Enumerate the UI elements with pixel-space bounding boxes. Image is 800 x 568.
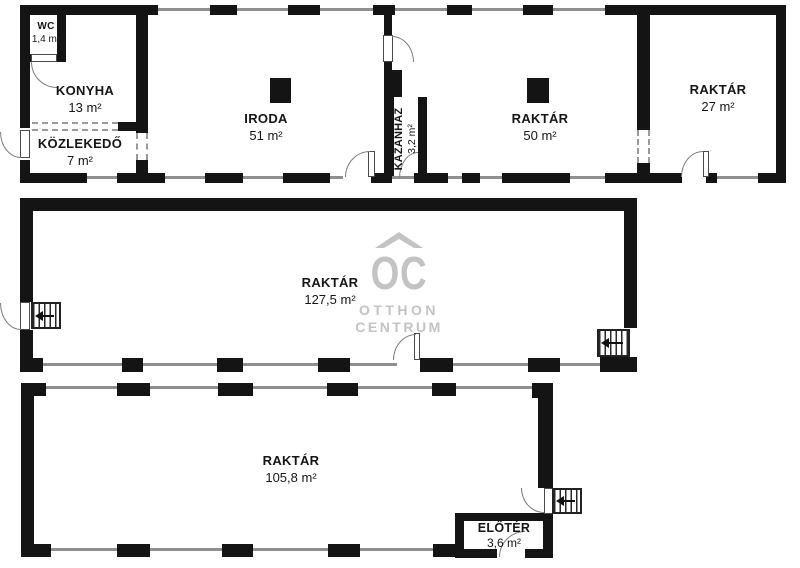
room-label-konyha: KONYHA 13 m² xyxy=(56,83,114,117)
wall-segment xyxy=(21,544,51,557)
window-line xyxy=(570,176,605,179)
staircase xyxy=(31,302,61,329)
wall-segment xyxy=(21,383,34,557)
watermark-logo-text: OC xyxy=(359,246,439,300)
room-area: 127,5 m² xyxy=(302,292,359,309)
wall-segment xyxy=(20,358,43,372)
wall-segment xyxy=(122,358,143,372)
wall-segment xyxy=(523,5,553,15)
dashed-opening xyxy=(136,133,148,160)
room-area: 7 m² xyxy=(38,153,122,170)
wall-segment xyxy=(117,173,165,183)
window-line xyxy=(243,176,283,179)
wall-segment xyxy=(136,5,148,133)
room-name: RAKTÁR xyxy=(302,275,359,292)
room-area: 1,4 m² xyxy=(32,33,60,46)
door-swing-arc xyxy=(0,303,21,330)
room-area: 50 m² xyxy=(512,128,569,145)
wall-segment xyxy=(502,173,570,183)
wall-segment xyxy=(210,5,237,15)
room-area: 105,8 m² xyxy=(263,470,320,487)
room-area: 3,6 m² xyxy=(478,536,531,552)
wall-segment xyxy=(217,358,243,372)
wall-segment xyxy=(117,544,150,557)
door-leaf xyxy=(20,302,30,330)
room-label-kazanhaz: KAZÁNHÁZ 3,2 m² xyxy=(392,108,420,171)
wall-segment xyxy=(605,5,786,15)
floor-plan: OC OTTHON CENTRUM WC 1,4 m² KONYHA 13 m²… xyxy=(0,0,800,568)
wall-segment xyxy=(328,544,360,557)
window-line xyxy=(453,363,600,366)
room-label-kozlekedo: KÖZLEKEDŐ 7 m² xyxy=(38,136,122,170)
stair-direction-arrow xyxy=(564,500,575,502)
room-area: 3,2 m² xyxy=(406,108,420,171)
staircase xyxy=(552,488,582,514)
door-swing-arc xyxy=(392,36,414,62)
stair-direction-arrow xyxy=(609,342,623,344)
window-line xyxy=(165,176,205,179)
room-label-eloter: ELŐTÉR 3,6 m² xyxy=(478,520,531,552)
door-swing-arc xyxy=(393,334,416,360)
room-name: RAKTÁR xyxy=(512,111,569,128)
wall-segment xyxy=(776,5,786,183)
room-name: ELŐTÉR xyxy=(478,520,531,536)
wall-segment xyxy=(462,173,480,183)
window-line xyxy=(717,176,758,179)
door-leaf xyxy=(703,151,709,177)
room-name: RAKTÁR xyxy=(263,453,320,470)
wall-segment xyxy=(637,163,650,173)
wall-segment xyxy=(205,173,243,183)
dashed-opening xyxy=(32,122,118,131)
door-swing-arc xyxy=(681,151,703,177)
room-label-raktar-50: RAKTÁR 50 m² xyxy=(512,111,569,145)
wall-segment xyxy=(318,358,350,372)
wall-segment xyxy=(20,54,31,62)
room-name: KAZÁNHÁZ xyxy=(392,108,406,171)
door-swing-arc xyxy=(31,62,57,88)
room-area: 13 m² xyxy=(56,100,114,117)
watermark-line2: CENTRUM xyxy=(339,319,459,335)
window-line xyxy=(480,176,502,179)
room-area: 51 m² xyxy=(244,128,287,145)
wall-segment xyxy=(327,383,358,396)
wall-segment xyxy=(420,358,453,372)
stair-direction-arrow xyxy=(43,315,54,317)
wall-segment xyxy=(447,5,472,15)
room-name: KONYHA xyxy=(56,83,114,100)
wall-segment xyxy=(605,173,682,183)
wall-segment xyxy=(600,358,637,372)
door-swing-arc xyxy=(0,132,21,158)
wall-segment xyxy=(433,544,458,557)
wall-segment xyxy=(758,173,786,183)
window-line xyxy=(330,176,343,179)
dashed-opening xyxy=(637,130,650,163)
door-swing-arc xyxy=(521,488,544,513)
room-name: RAKTÁR xyxy=(690,82,747,99)
room-name: IRODA xyxy=(244,111,287,128)
window-line xyxy=(34,386,536,389)
room-label-raktar-27: RAKTÁR 27 m² xyxy=(690,82,747,116)
wall-segment xyxy=(528,358,560,372)
room-name: KÖZLEKEDŐ xyxy=(38,136,122,153)
wall-segment xyxy=(20,330,33,358)
door-swing-arc xyxy=(345,151,370,177)
room-label-wc: WC 1,4 m² xyxy=(32,20,60,46)
wall-segment xyxy=(387,70,402,97)
column-pillar xyxy=(270,78,291,103)
room-name: WC xyxy=(32,20,60,33)
staircase xyxy=(597,329,630,357)
wall-segment xyxy=(20,211,33,302)
door-leaf xyxy=(20,130,30,158)
room-area: 27 m² xyxy=(690,99,747,116)
wall-segment xyxy=(637,5,650,130)
column-pillar xyxy=(527,78,549,103)
wall-segment xyxy=(117,383,150,396)
wall-segment xyxy=(432,383,456,396)
room-label-raktar-127: RAKTÁR 127,5 m² xyxy=(302,275,359,309)
wall-segment xyxy=(384,5,392,35)
wall-segment xyxy=(21,383,46,396)
room-label-raktar-105: RAKTÁR 105,8 m² xyxy=(263,453,320,487)
wall-segment xyxy=(136,160,148,173)
wall-segment xyxy=(538,395,553,488)
wall-segment xyxy=(20,198,637,211)
wall-segment xyxy=(624,211,637,328)
wall-segment xyxy=(283,173,330,183)
wall-segment xyxy=(288,5,320,15)
window-line xyxy=(87,176,117,179)
window-line xyxy=(448,176,462,179)
door-leaf xyxy=(31,54,57,62)
wall-segment xyxy=(20,5,30,128)
wall-segment xyxy=(218,383,253,396)
wall-segment xyxy=(222,544,253,557)
room-label-iroda: IRODA 51 m² xyxy=(244,111,287,145)
wall-segment xyxy=(20,173,87,183)
